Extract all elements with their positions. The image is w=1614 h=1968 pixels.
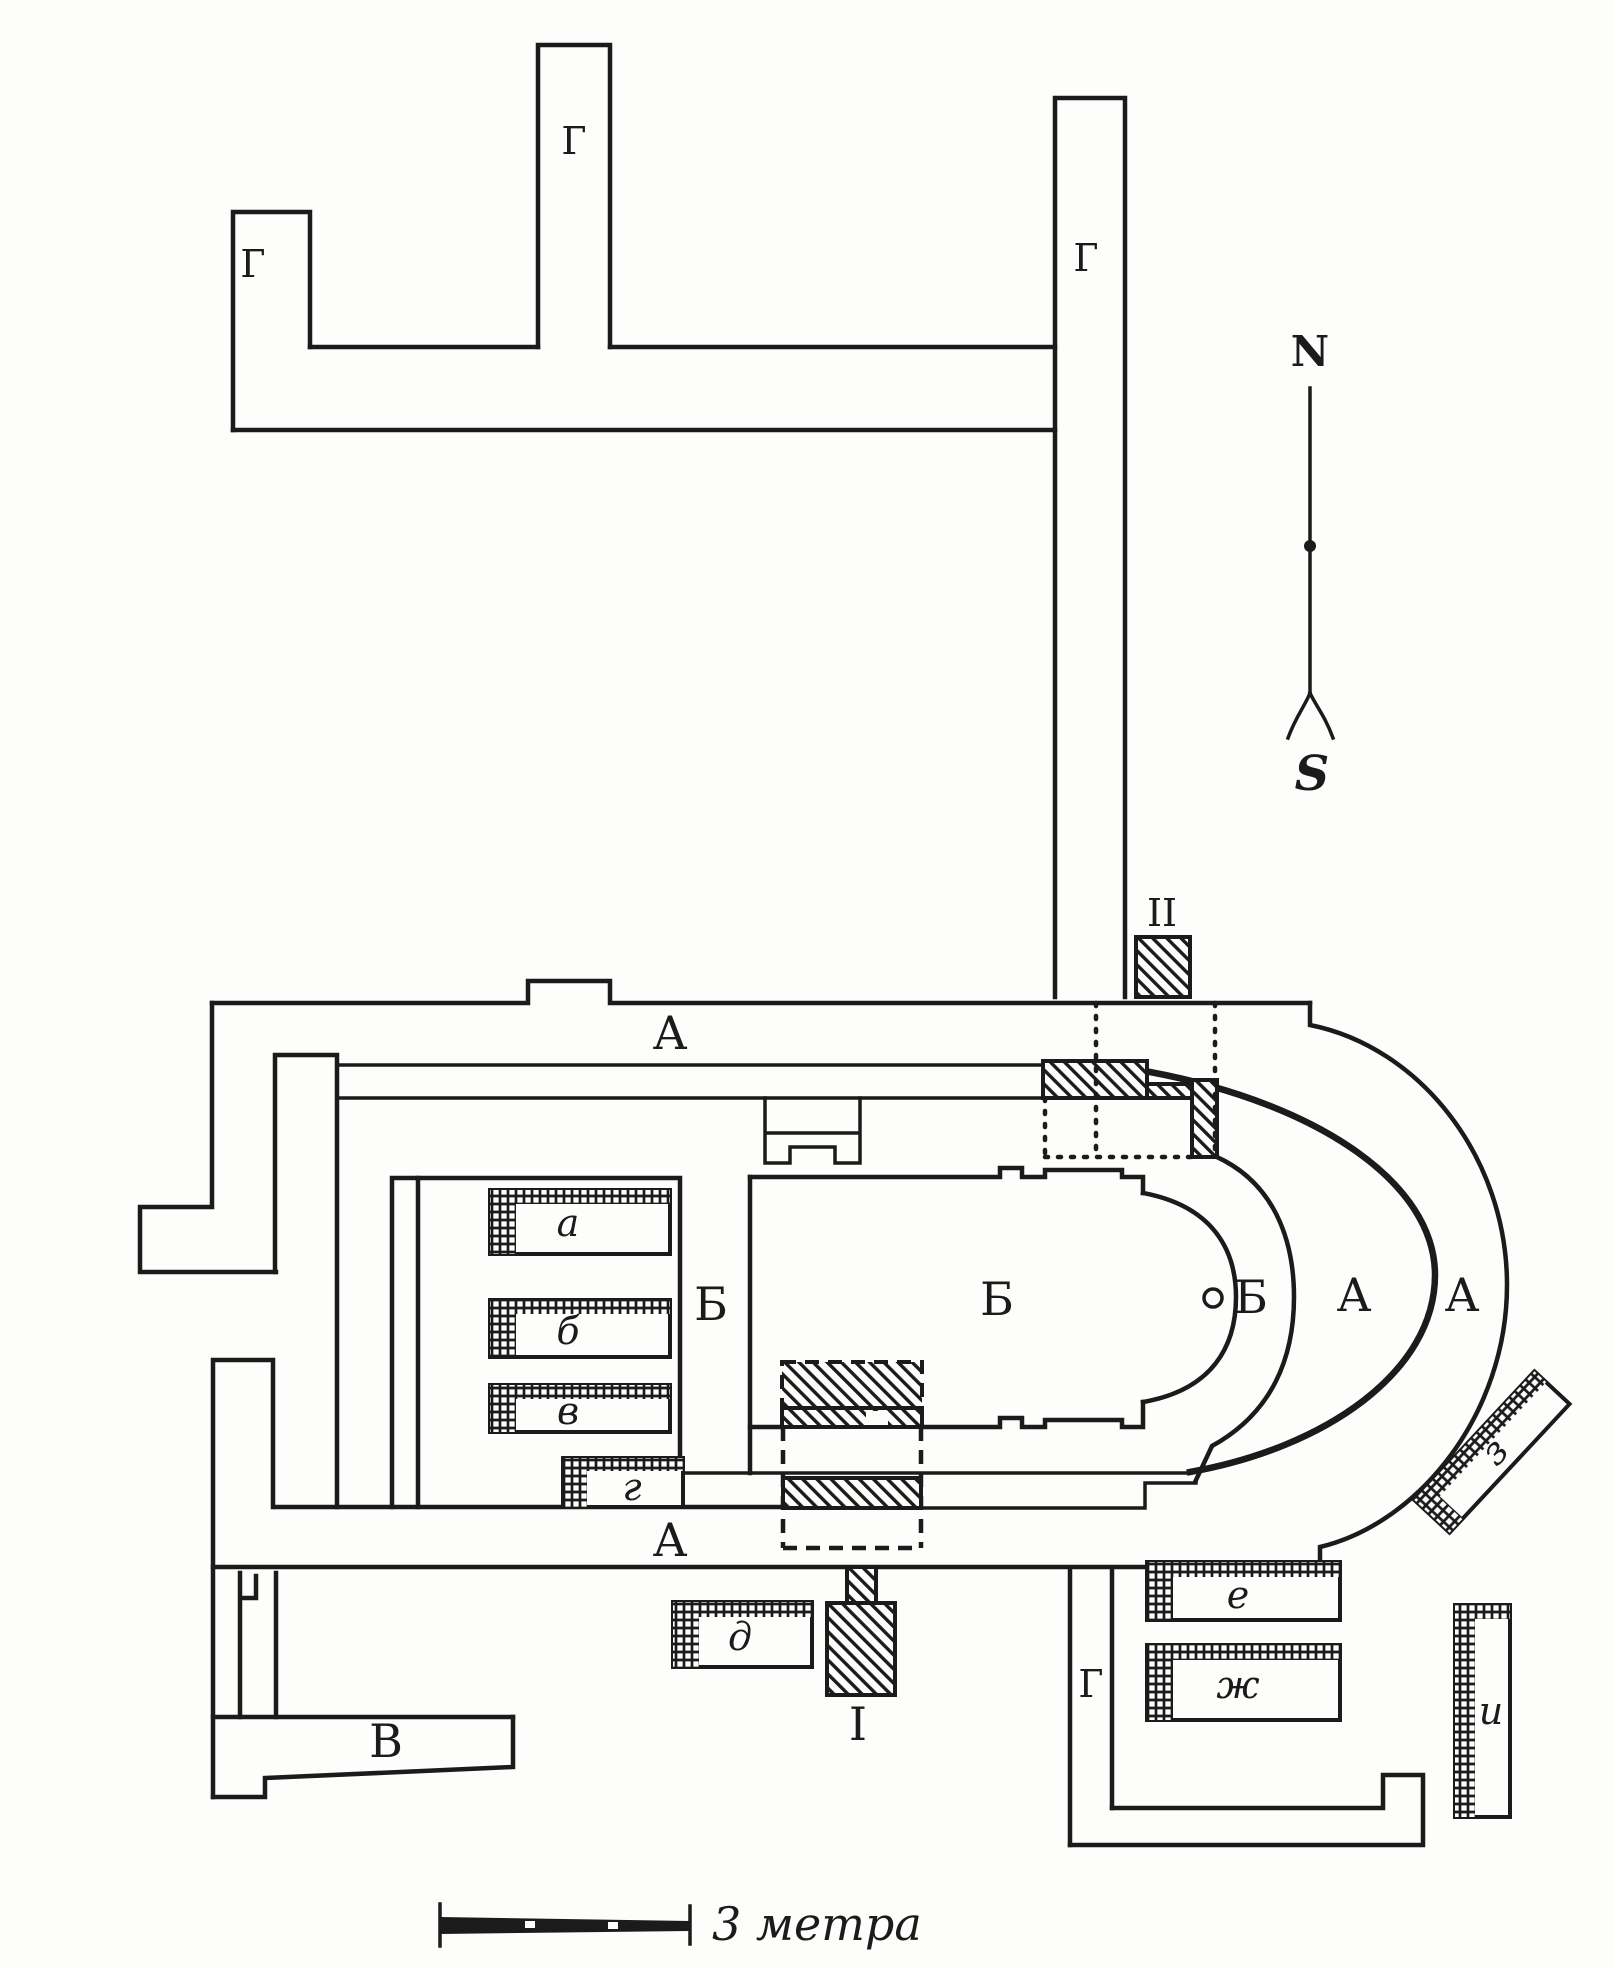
bench-v: в: [490, 1385, 670, 1433]
north-wall-hatched-strip: [1147, 1084, 1195, 1098]
bench-zh-hatch-left: [1147, 1645, 1173, 1720]
label-nave-center: Б: [980, 1272, 1014, 1326]
bench-v-hatch-top: [490, 1385, 670, 1399]
scale-bar-division-1: [525, 1921, 535, 1928]
label-gallery-center: Г: [561, 119, 586, 163]
label-portal-two: II: [1147, 891, 1177, 935]
scale-bar-label: 3 метра: [712, 1897, 922, 1951]
label-aisle-outer: А: [1445, 1268, 1480, 1322]
label-nave-apse: Б: [1234, 1270, 1268, 1324]
floor-plan-sheet: а б в г д е: [0, 0, 1614, 1968]
scale-bar-division-2: [608, 1922, 618, 1929]
portal-two-block: [1136, 937, 1190, 997]
bench-a-hatch-left: [490, 1190, 516, 1254]
bench-e-label: е: [1227, 1573, 1250, 1617]
bench-e: е: [1147, 1562, 1340, 1620]
compass-south-label: S: [1295, 746, 1330, 802]
bench-i-label: и: [1479, 1689, 1503, 1733]
label-aisle-south: А: [653, 1513, 688, 1567]
south-wall-hatched-section: [783, 1478, 921, 1508]
bench-zh-hatch-top: [1147, 1645, 1340, 1660]
portal-one-neck: [847, 1567, 876, 1603]
label-portal-one: I: [849, 1697, 867, 1751]
bench-d-hatch-left: [673, 1602, 699, 1667]
bench-g-label: г: [622, 1465, 641, 1509]
bench-a-label: а: [557, 1201, 580, 1245]
bench-b-hatch-top: [490, 1300, 670, 1314]
bench-a: а: [490, 1190, 670, 1254]
bench-e-hatch-left: [1147, 1562, 1173, 1620]
solea-strip-gap: [866, 1411, 888, 1425]
bench-d-label: д: [728, 1615, 752, 1659]
label-annex-b: В: [369, 1714, 403, 1768]
label-nave-west-corridor: Б: [694, 1277, 728, 1331]
bench-i: и: [1455, 1605, 1510, 1817]
bench-a-hatch-top: [490, 1190, 670, 1204]
bench-b-label: б: [556, 1309, 580, 1353]
compass-north-label: N: [1291, 327, 1329, 376]
bench-zh-label: ж: [1216, 1663, 1259, 1707]
bench-v-hatch-left: [490, 1385, 516, 1432]
label-gallery-left: Г: [240, 242, 265, 286]
floor-plan-drawing: а б в г д е: [0, 0, 1614, 1968]
bench-v-label: в: [557, 1389, 579, 1433]
solea-hatched-strip: [782, 1408, 922, 1427]
bench-g-hatch-left: [563, 1458, 587, 1507]
label-aisle-ambulatory: А: [1337, 1268, 1372, 1322]
label-gallery-right: Г: [1073, 236, 1098, 280]
solea-hatched-block: [782, 1362, 922, 1408]
bench-d: д: [673, 1602, 812, 1667]
bench-zh: ж: [1147, 1645, 1340, 1720]
portal-one-block: [827, 1603, 895, 1695]
bench-g: г: [563, 1458, 683, 1509]
label-aisle-north: А: [653, 1006, 688, 1060]
compass-pivot-dot: [1304, 540, 1316, 552]
bench-i-hatch-left: [1455, 1605, 1475, 1817]
label-gallery-south: Г: [1078, 1662, 1103, 1706]
bench-b-hatch-left: [490, 1300, 516, 1357]
bench-b: б: [490, 1300, 670, 1357]
